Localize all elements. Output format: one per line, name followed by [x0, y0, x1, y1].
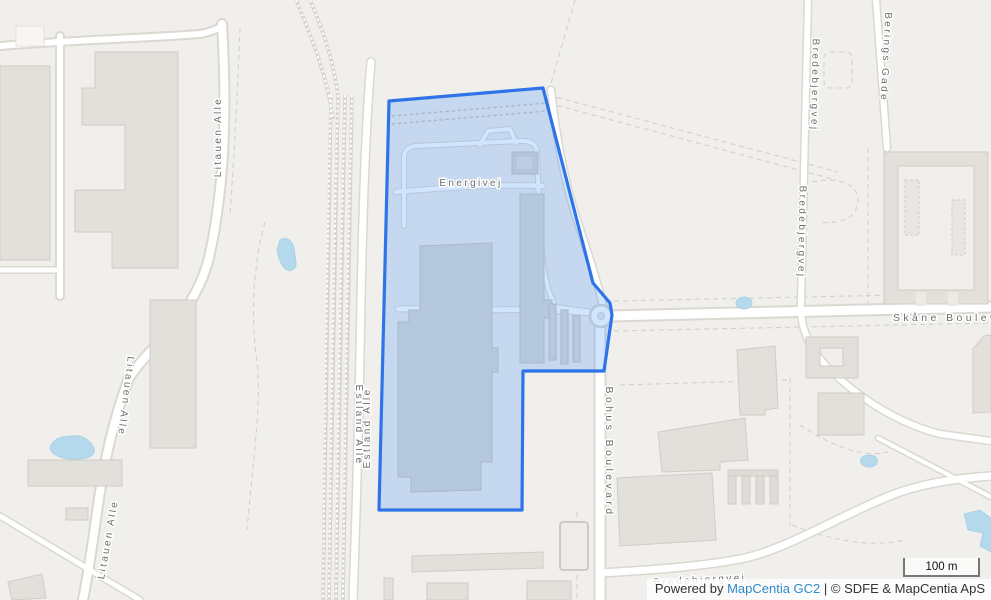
- attribution-link[interactable]: MapCentia GC2: [727, 581, 820, 596]
- street-label-bohus-boulevard: Bohus Boulevard: [603, 387, 615, 518]
- scale-control: 100 m: [903, 558, 980, 577]
- attribution-control: Powered by MapCentia GC2 | © SDFE & MapC…: [647, 579, 991, 600]
- pond-bredebjerg: [861, 455, 878, 467]
- street-label-litauen-alle-north: Litauen Alle: [213, 97, 224, 178]
- street-label-estland-alle-east: Estland Alle: [362, 387, 373, 468]
- street-label-bredebjergvej-north: Bredebjergvej: [808, 39, 821, 132]
- street-label-skane-boulevard: Skåne Boulevard: [893, 312, 991, 324]
- street-label-energivej: Energivej: [439, 178, 502, 189]
- map-canvas[interactable]: Litauen Alle Litauen Alle Litauen Alle E…: [0, 0, 991, 600]
- attribution-prefix: Powered by: [655, 581, 727, 596]
- map-svg: Litauen Alle Litauen Alle Litauen Alle E…: [0, 0, 991, 600]
- attribution-separator: |: [820, 581, 831, 596]
- pond-skane: [736, 297, 752, 309]
- scale-label: 100 m: [926, 561, 958, 573]
- attribution-copyright: © SDFE & MapCentia ApS: [831, 581, 985, 596]
- street-label-bredebjergvej-mid: Bredebjergvej: [795, 186, 808, 279]
